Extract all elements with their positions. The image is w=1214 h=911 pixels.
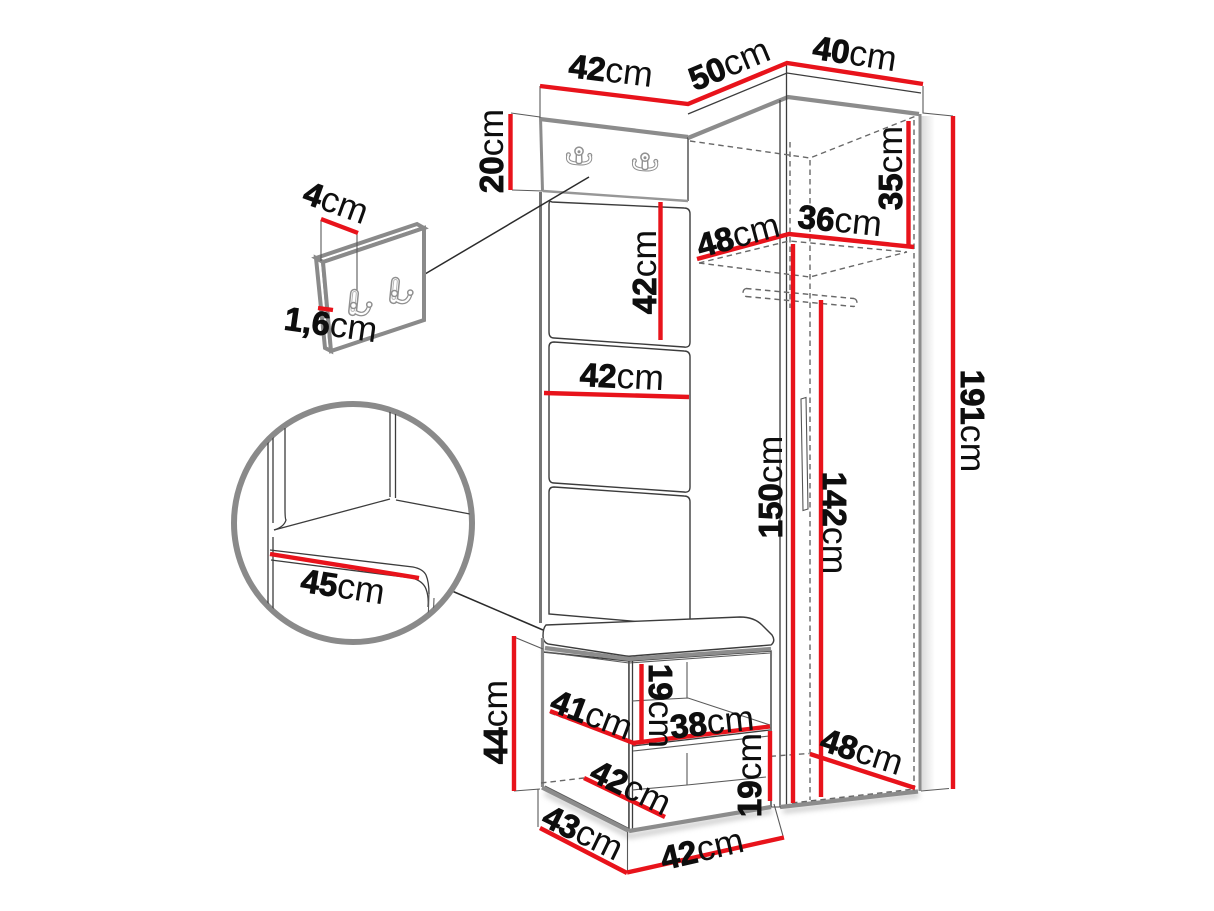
svg-text:19cm: 19cm: [729, 733, 769, 817]
svg-text:191cm: 191cm: [953, 370, 993, 473]
svg-text:150cm: 150cm: [750, 436, 790, 539]
svg-text:42cm: 42cm: [624, 230, 664, 314]
svg-text:42cm: 42cm: [579, 354, 665, 398]
svg-text:44cm: 44cm: [475, 680, 515, 764]
svg-text:20cm: 20cm: [471, 109, 511, 193]
svg-text:35cm: 35cm: [870, 126, 910, 210]
svg-text:142cm: 142cm: [815, 472, 855, 575]
